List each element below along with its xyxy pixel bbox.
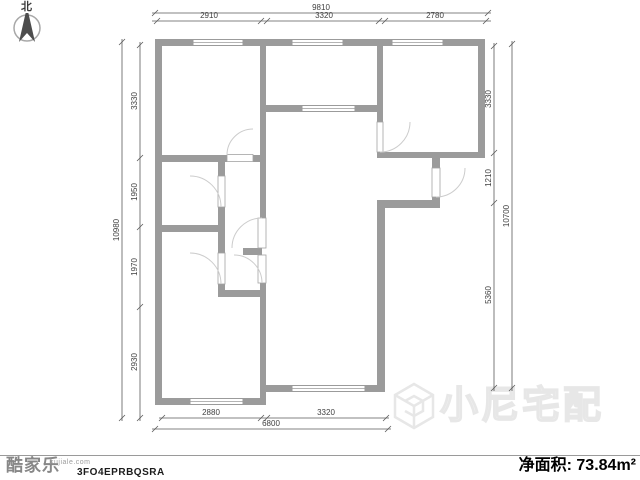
- dim-bottom-seg-2: 3320: [317, 409, 335, 417]
- dim-left-seg-1: 3330: [131, 92, 139, 110]
- dim-top-seg-1: 2910: [200, 12, 218, 20]
- windows-layer: [190, 40, 443, 405]
- dim-top-seg-3: 2780: [426, 12, 444, 20]
- dim-bottom-total: 6800: [262, 420, 280, 428]
- dim-right-total: 10700: [503, 205, 511, 227]
- dim-right-seg-3: 5360: [485, 286, 493, 304]
- kujiale-site-url: kujiale.com: [50, 459, 91, 466]
- plan-code: 3FO4EPRBQSRA: [77, 467, 165, 478]
- dimension-lines-layer: [119, 10, 515, 432]
- compass-north-label: 北: [20, 1, 33, 13]
- dim-left-seg-2: 1950: [131, 183, 139, 201]
- floor-plan-canvas: [0, 0, 640, 455]
- floor-plan-page: 小尼宅配: [0, 0, 640, 480]
- walls-layer: [155, 39, 485, 405]
- dim-top-seg-2: 3320: [315, 12, 333, 20]
- dim-left-seg-3: 1970: [131, 258, 139, 276]
- dim-left-total: 10980: [113, 219, 121, 241]
- dim-left-seg-4: 2930: [131, 353, 139, 371]
- dim-right-seg-2: 1210: [485, 169, 493, 187]
- dim-right-seg-1: 3330: [485, 90, 493, 108]
- net-area-value: 73.84m²: [576, 457, 636, 474]
- net-area-label: 净面积:: [519, 457, 572, 474]
- net-area: 净面积: 73.84m²: [519, 456, 636, 476]
- dim-bottom-seg-1: 2880: [202, 409, 220, 417]
- footer: 酷家乐 kujiale.com 3FO4EPRBQSRA 净面积: 73.84m…: [0, 456, 640, 480]
